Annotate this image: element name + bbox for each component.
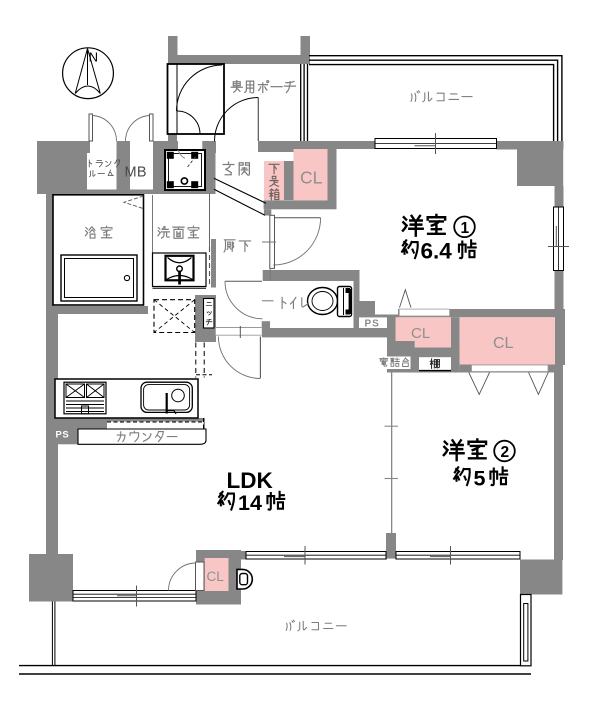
svg-text:CL: CL [411,325,430,342]
svg-text:5: 5 [474,467,486,491]
svg-text:CL: CL [207,569,225,584]
svg-text:PS: PS [365,319,380,330]
svg-text:PS: PS [56,430,70,441]
svg-text:1: 1 [461,220,470,237]
svg-text:N: N [89,50,98,65]
svg-text:CL: CL [493,335,514,352]
svg-text:MB: MB [125,165,147,181]
svg-text:6.4: 6.4 [421,239,453,264]
svg-text:2: 2 [501,444,510,461]
svg-text:14: 14 [238,491,262,515]
svg-text:CL: CL [300,168,323,188]
svg-text:LDK: LDK [227,468,274,493]
